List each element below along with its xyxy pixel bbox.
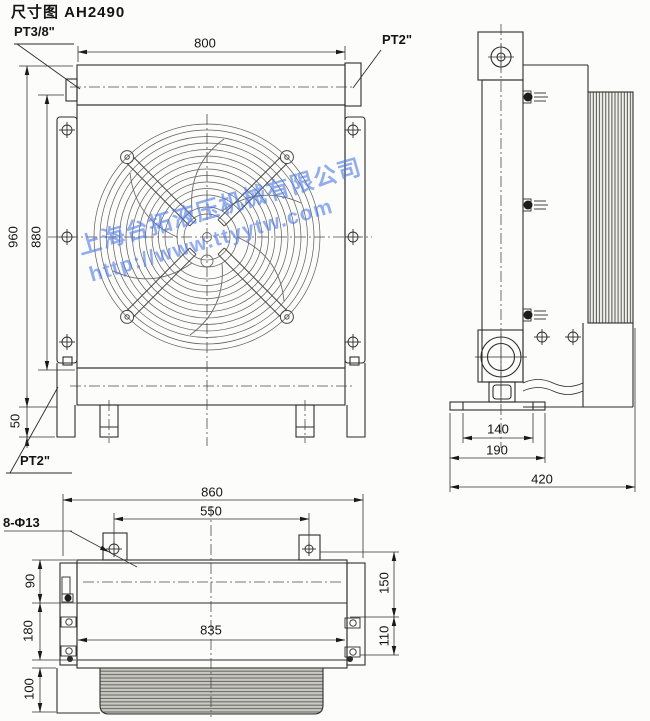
dim-800: 800 bbox=[194, 37, 216, 50]
dim-880: 880 bbox=[30, 226, 43, 248]
dim-50: 50 bbox=[9, 414, 22, 428]
dim-420: 420 bbox=[531, 473, 553, 486]
front-view bbox=[6, 44, 381, 473]
dim-960: 960 bbox=[7, 226, 20, 248]
drawing-sheet: 尺寸图 AH2490 PT3/8" PT2" PT2" 800 960 880 … bbox=[0, 0, 650, 721]
side-view bbox=[450, 24, 635, 492]
dim-180: 180 bbox=[22, 620, 35, 642]
dim-550: 550 bbox=[200, 505, 222, 518]
dim-140: 140 bbox=[487, 423, 509, 436]
dim-90: 90 bbox=[24, 574, 37, 588]
dim-150: 150 bbox=[378, 572, 391, 594]
top-view bbox=[4, 494, 399, 717]
port-label-pt38-top: PT3/8" bbox=[14, 25, 55, 38]
dim-860: 860 bbox=[201, 486, 223, 499]
dim-110: 110 bbox=[378, 626, 391, 647]
page-title: 尺寸图 AH2490 bbox=[11, 5, 125, 20]
port-label-pt2-bottom: PT2" bbox=[20, 454, 50, 467]
dim-835: 835 bbox=[200, 624, 222, 637]
dim-190: 190 bbox=[486, 444, 508, 457]
port-label-pt2-top: PT2" bbox=[382, 33, 412, 46]
dim-100: 100 bbox=[23, 678, 36, 700]
callout-8-phi13: 8-Φ13 bbox=[3, 516, 40, 529]
technical-drawing bbox=[0, 0, 650, 721]
